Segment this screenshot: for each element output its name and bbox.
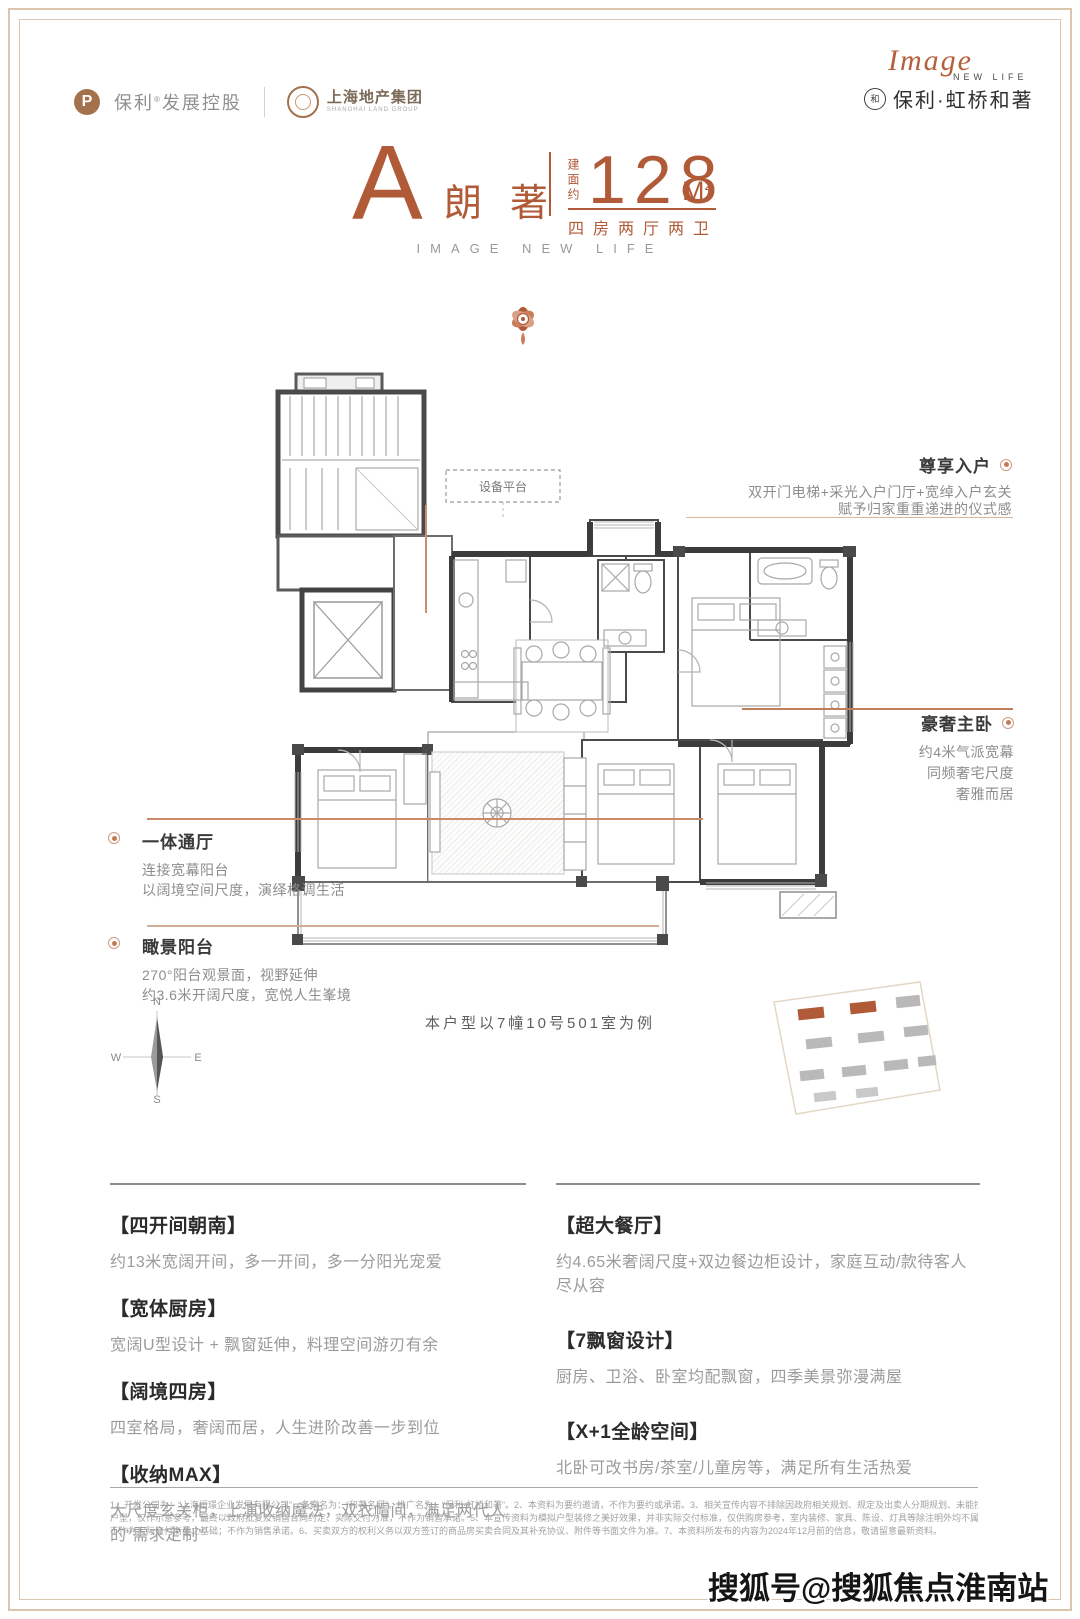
area-unit: M2 [682,176,712,207]
title-divider [549,152,551,216]
unit-name: 朗著 [444,172,576,227]
disclaimer-line1: 1、开发公司为：“上海垣璟企业发展有限公司”，备案名为：“和著名邸”，推广名为：… [110,1499,978,1512]
brand-left: P 保利®发展控股 上海地产集团 SHANGHAI LAND GROUP [74,86,423,118]
poly-brand-suffix: 发展控股 [162,93,242,113]
feature-desc: 四室格局，奢阔而居，人生进阶改善一步到位 [110,1414,526,1438]
disclaimer-rule [110,1487,978,1488]
living-leader-line [147,818,703,820]
feature-title: 【收纳MAX】 [110,1460,526,1487]
annotation-master-line1: 约4米气派宽幕 [919,742,1014,763]
living-room-furniture [430,752,586,874]
disclaimer-line2: 户型，仅作示意参考，最终以政府批复及销售合同约定、实际交付为准，不作为销售承诺。… [110,1512,978,1525]
poly-brand-name: 保利 [114,93,154,113]
project-name: 保利·虹桥和著 [893,84,1034,113]
annotation-balcony-line1: 270°阳台观景面，视野延伸 [142,965,351,985]
poly-logo-icon: P [74,89,100,115]
area-underline [568,208,716,210]
feature-title: 【7飘窗设计】 [556,1326,980,1353]
annotation-entry-line1: 双开门电梯+采光入户门厅+宽绰入户玄关 [748,484,1012,501]
shanghai-land-name: 上海地产集团 [327,90,423,107]
equipment-platform-label: 设备平台 [479,479,527,494]
annotation-master-line3: 奢雅而居 [919,784,1014,805]
compass-south: S [153,1094,160,1105]
annotation-entry: 尊享入户 双开门电梯+采光入户门厅+宽绰入户玄关 赋予归家重重递进的仪式感 [748,452,1012,517]
feature-title: 【超大餐厅】 [556,1211,980,1238]
feature-desc: 厨房、卫浴、卧室均配飘窗，四季美景弥漫满屋 [556,1363,980,1387]
features-right-rule [556,1183,980,1185]
annotation-balcony-title: 瞰景阳台 [142,933,214,958]
compass-north: N [153,996,161,1008]
new-life-text: NEW LIFE [953,72,1028,82]
feature-title: 【四开间朝南】 [110,1211,526,1238]
feature-title: 【阔境四房】 [110,1377,526,1404]
flower-emblem-icon [501,296,545,346]
compass-east: E [194,1052,201,1064]
annotation-master-line2: 同频奢宅尺度 [919,763,1014,784]
feature-title: 【X+1全龄空间】 [556,1417,980,1444]
disclaimer-line3: 不作为实际交付衡量之基础；不作为销售承诺。6、买卖双方的权利义务以双方签订的商品… [110,1525,978,1538]
brand-divider [264,87,265,117]
area-label: 建面约 [566,158,580,203]
unit-letter: A [352,130,423,236]
annotation-living-title: 一体通厅 [142,828,214,853]
annotation-bullet-icon [1000,459,1012,471]
annotation-entry-title: 尊享入户 [919,452,991,477]
annotation-bullet-icon [1002,717,1014,729]
annotation-master-title: 豪奢主卧 [921,710,993,735]
feature-desc: 宽阔U型设计 + 飘窗延伸，料理空间游刃有余 [110,1331,526,1355]
annotation-bullet-icon [108,832,120,844]
rooms-line: 四房两厅两卫 [568,215,716,239]
feature-title: 【宽体厨房】 [110,1294,526,1321]
annotation-bullet-icon [108,937,120,949]
project-brand: 和 保利·虹桥和著 [864,84,1034,113]
shanghai-land-sub: SHANGHAI LAND GROUP [327,107,423,114]
site-plan [758,978,948,1120]
feature-desc: 约13米宽阔开间，多一开间，多一分阳光宠爱 [110,1248,526,1272]
flower-box [780,892,836,918]
annotation-living-line1: 连接宽幕阳台 [142,860,345,880]
annotation-entry-line2: 赋予归家重重递进的仪式感 [748,501,1012,518]
compass-icon: N W E S [107,993,207,1105]
annotation-living-line2: 以阔境空间尺度，演绎格调生活 [142,880,345,900]
poster-page: P 保利®发展控股 上海地产集团 SHANGHAI LAND GROUP Ima… [0,0,1080,1619]
shanghai-land-brand: 上海地产集团 SHANGHAI LAND GROUP [287,86,423,118]
entry-leader-vertical [425,505,427,613]
feature-desc: 约4.65米奢阔尺度+双边餐边柜设计，家庭互动/款待客人尽从容 [556,1248,980,1296]
features-left-rule [110,1183,526,1185]
disclaimer: 1、开发公司为：“上海垣璟企业发展有限公司”，备案名为：“和著名邸”，推广名为：… [110,1487,978,1538]
compass-west: W [111,1052,122,1064]
poly-brand-text: 保利®发展控股 [114,89,242,115]
project-seal-icon: 和 [864,88,886,110]
features-right-column: 【超大餐厅】 约4.65米奢阔尺度+双边餐边柜设计，家庭互动/款待客人尽从容 【… [556,1183,980,1508]
area-unit-sup: 2 [705,178,712,193]
area-unit-m: M [682,176,705,206]
entry-leader-line [686,517,1013,518]
feature-desc: 北卧可改书房/茶室/儿童房等，满足所有生活热爱 [556,1454,980,1478]
equipment-platform: 设备平台 [446,470,560,520]
shanghai-land-logo-icon [287,86,319,118]
slogan: IMAGE NEW LIFE [0,241,1080,256]
balcony-leader-line [147,925,659,927]
watermark: 搜狐号@搜狐焦点淮南站 [708,1563,1048,1608]
annotation-master: 豪奢主卧 约4米气派宽幕 同频奢宅尺度 奢雅而居 [919,710,1014,805]
poly-reg-mark: ® [154,95,162,104]
annotation-living: 一体通厅 连接宽幕阳台 以阔境空间尺度，演绎格调生活 [142,828,345,900]
